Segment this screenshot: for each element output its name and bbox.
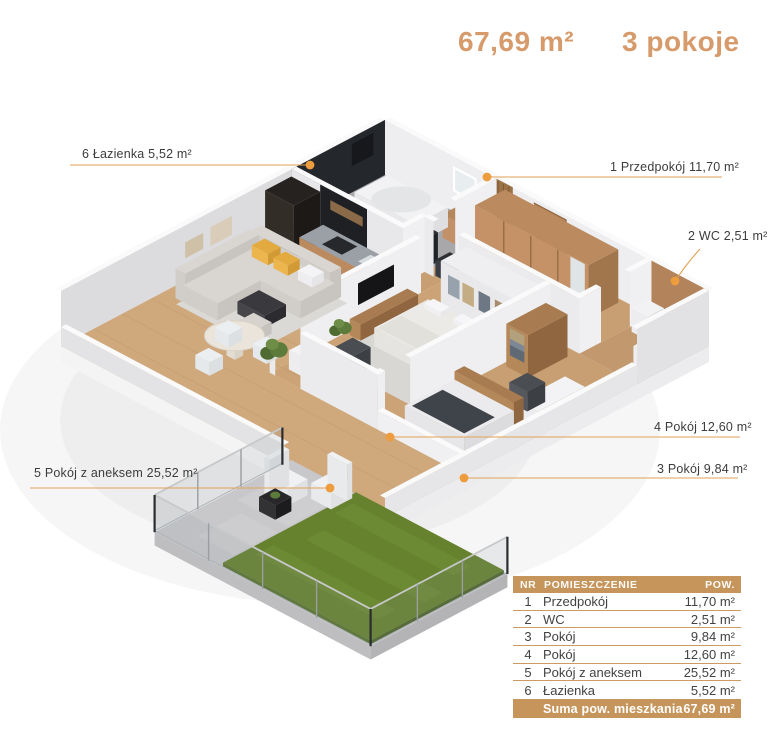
table-row: 5Pokój z aneksem25,52 m² — [513, 664, 741, 682]
table-row: 1Przedpokój11,70 m² — [513, 593, 741, 611]
row-name: Przedpokój — [543, 594, 685, 609]
row-name: Pokój z aneksem — [543, 665, 684, 680]
sum-label: Suma pow. mieszkania — [543, 702, 683, 716]
room-label-2: 2 WC 2,51 m² — [688, 229, 768, 243]
row-area: 11,70 m² — [685, 594, 735, 609]
row-nr: 6 — [513, 683, 543, 698]
rooms-count: 3 pokoje — [622, 26, 740, 58]
table-row: 4Pokój12,60 m² — [513, 646, 741, 664]
room-label-4: 4 Pokój 12,60 m² — [654, 420, 752, 434]
row-name: Pokój — [543, 629, 691, 644]
area-table: NR POMIESZCZENIE POW. 1Przedpokój11,70 m… — [513, 576, 741, 718]
row-nr: 1 — [513, 594, 543, 609]
table-row: 3Pokój9,84 m² — [513, 628, 741, 646]
table-row: 2WC2,51 m² — [513, 611, 741, 629]
row-nr: 4 — [513, 647, 543, 662]
row-name: Łazienka — [543, 683, 691, 698]
row-nr: 3 — [513, 629, 543, 644]
row-nr: 5 — [513, 665, 543, 680]
room-label-5: 5 Pokój z aneksem 25,52 m² — [34, 466, 198, 480]
total-area: 67,69 m² — [458, 26, 574, 58]
area-table-footer: Suma pow. mieszkania 67,69 m² — [513, 699, 741, 718]
row-name: Pokój — [543, 647, 684, 662]
row-area: 5,52 m² — [691, 683, 735, 698]
col-nr: NR — [520, 579, 544, 591]
room-label-1: 1 Przedpokój 11,70 m² — [610, 160, 739, 174]
col-room: POMIESZCZENIE — [544, 579, 638, 591]
row-area: 2,51 m² — [691, 612, 735, 627]
row-area: 9,84 m² — [691, 629, 735, 644]
row-area: 25,52 m² — [684, 665, 735, 680]
room-label-3: 3 Pokój 9,84 m² — [657, 462, 748, 476]
area-table-header: NR POMIESZCZENIE POW. — [513, 576, 741, 593]
table-row: 6Łazienka5,52 m² — [513, 681, 741, 699]
area-table-body: 1Przedpokój11,70 m²2WC2,51 m²3Pokój9,84 … — [513, 593, 741, 699]
col-area: POW. — [705, 579, 735, 591]
sum-value: 67,69 m² — [683, 702, 735, 716]
row-name: WC — [543, 612, 691, 627]
room-label-6: 6 Łazienka 5,52 m² — [82, 147, 192, 161]
row-nr: 2 — [513, 612, 543, 627]
row-area: 12,60 m² — [684, 647, 735, 662]
